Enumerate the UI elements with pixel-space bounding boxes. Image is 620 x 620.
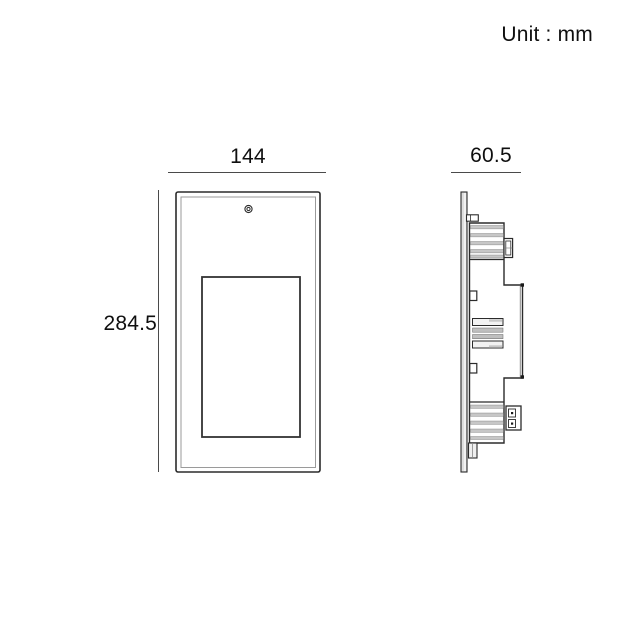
terminal-screw-dot <box>511 412 513 414</box>
fin-stripe <box>471 429 504 432</box>
terminal-bar <box>473 335 504 339</box>
fin-stripe <box>471 405 504 408</box>
drawing-canvas <box>0 0 620 620</box>
fin-stripe <box>471 413 504 416</box>
technical-drawing-page: Unit : mm 144 60.5 284.5 <box>0 0 620 620</box>
front-view <box>176 192 320 472</box>
display-screen <box>202 277 300 437</box>
side-clip <box>470 364 477 374</box>
fin-stripe <box>471 234 504 237</box>
top-rear-connector <box>504 239 513 258</box>
side-front-plate <box>461 192 467 472</box>
terminal-screw-dot <box>511 423 513 425</box>
fin-stripe <box>471 421 504 424</box>
fin-stripe <box>471 226 504 229</box>
bottom-rear-connector <box>506 406 521 430</box>
rear-box-corner-dot <box>521 283 524 286</box>
terminal-bar-shade <box>489 319 502 321</box>
fin-stripe <box>471 255 504 258</box>
terminal-bar-shade <box>489 345 502 347</box>
fin-stripe <box>471 242 504 245</box>
fin-stripe <box>471 437 504 440</box>
rear-box-corner-dot <box>521 375 524 378</box>
fin-stripe <box>471 250 504 253</box>
top-mounting-tab <box>467 215 479 221</box>
side-clip <box>470 291 477 301</box>
side-view <box>461 192 524 472</box>
terminal-bar <box>473 328 504 332</box>
